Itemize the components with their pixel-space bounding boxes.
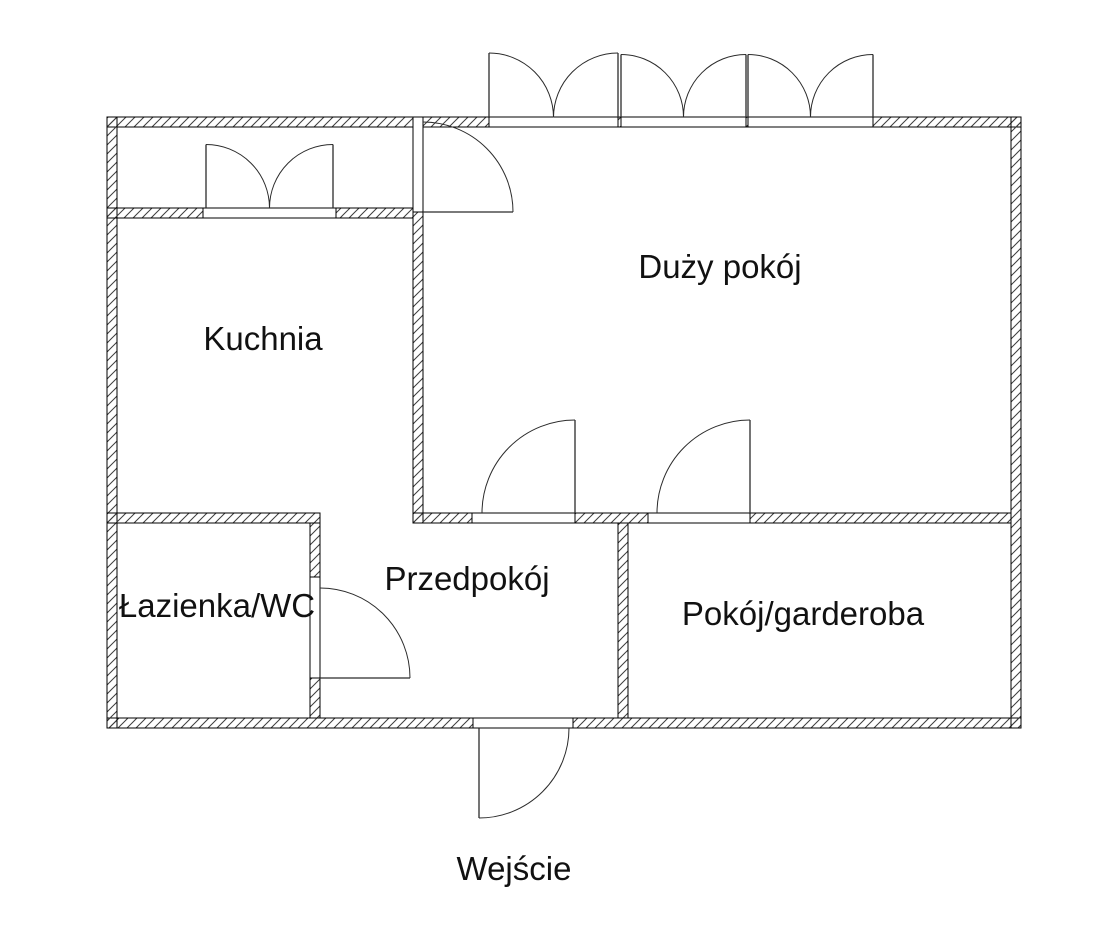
room-label-duzy-pokoj: Duży pokój xyxy=(638,248,801,285)
window-opening-2 xyxy=(621,117,746,127)
floor-plan-drawing: Kuchnia Duży pokój Przedpokój Łazienka/W… xyxy=(0,0,1118,933)
window-opening-1 xyxy=(489,117,618,127)
room-label-lazienka-wc: Łazienka/WC xyxy=(119,587,315,624)
kitchen-balcony-double-door xyxy=(206,145,333,209)
livingroom-door xyxy=(482,420,575,513)
wall-openings xyxy=(203,117,873,728)
wardrobe-room-door xyxy=(657,420,750,513)
livingroom-balcony-door xyxy=(423,122,513,212)
room-label-kuchnia: Kuchnia xyxy=(203,320,323,357)
wall-kitchen-livingroom xyxy=(413,212,423,523)
room-label-pokoj-garderoba: Pokój/garderoba xyxy=(682,595,925,632)
wardrobe-room-door-threshold xyxy=(648,513,750,523)
livingroom-door-threshold xyxy=(472,513,575,523)
wall-outer-right xyxy=(1011,117,1021,728)
window-opening-3 xyxy=(748,117,873,127)
window-casement-3 xyxy=(748,55,873,118)
window-casement-1 xyxy=(489,53,618,118)
bathroom-door xyxy=(320,588,410,678)
floor-plan: Kuchnia Duży pokój Przedpokój Łazienka/W… xyxy=(0,0,1118,933)
entrance-threshold xyxy=(473,718,573,728)
doors xyxy=(206,122,750,818)
window-casement-2 xyxy=(621,55,746,118)
livingroom-balcony-door-gap xyxy=(413,117,423,212)
room-labels: Kuchnia Duży pokój Przedpokój Łazienka/W… xyxy=(119,248,925,887)
entrance-label: Wejście xyxy=(457,850,572,887)
room-label-przedpokoj: Przedpokój xyxy=(384,560,549,597)
wall-hallway-wardrobe-room xyxy=(618,523,628,718)
balcony-door-threshold xyxy=(203,208,336,218)
entrance-door xyxy=(479,728,569,818)
wall-kitchen-bathroom xyxy=(107,513,320,523)
windows xyxy=(489,53,873,118)
